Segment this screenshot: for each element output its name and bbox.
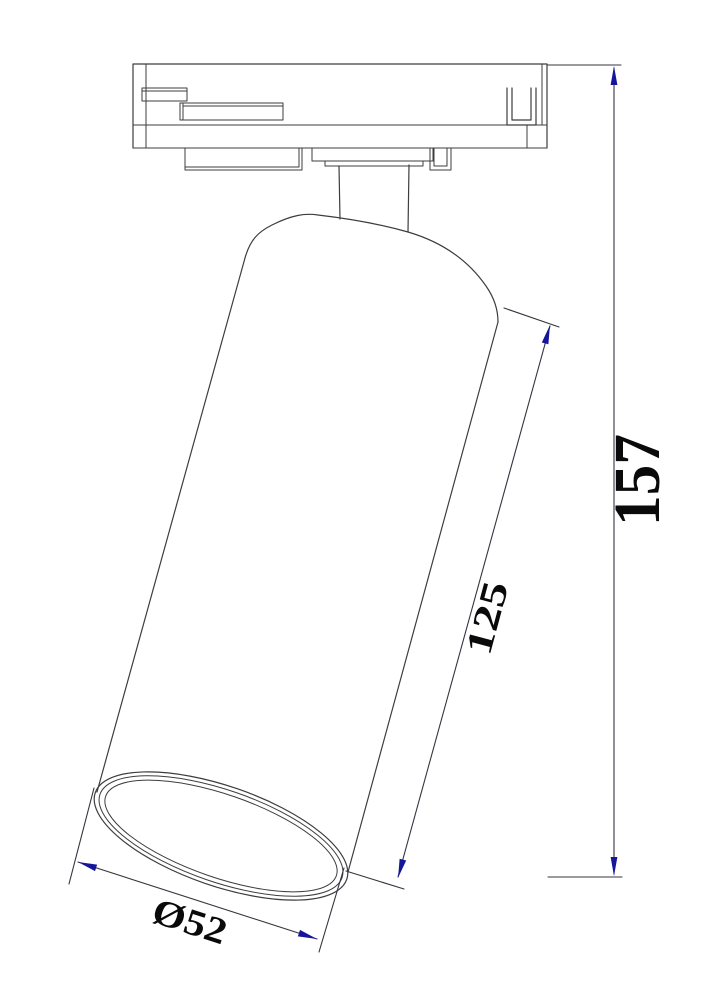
adapter-lug-left (185, 148, 302, 170)
mounting-stem (339, 165, 409, 232)
diameter-extension-right (319, 868, 344, 952)
spotlight-body (79, 214, 498, 926)
height-arrow-top-icon (611, 66, 618, 85)
body-length-dimension-label: 125 (459, 577, 518, 659)
body-side-left (97, 258, 245, 792)
dimension-body-length: 125 (346, 308, 559, 889)
track-adapter (133, 64, 547, 170)
body-length-arrow-bottom-icon (395, 859, 406, 879)
lens-ring-middle (85, 751, 357, 921)
stem-line-left (339, 166, 340, 219)
dimension-drawing: 157 125 Ø52 (0, 0, 707, 1000)
adapter-clip (507, 88, 536, 125)
body-length-arrow-top-icon (542, 324, 553, 344)
adapter-lug-center (312, 148, 433, 166)
body-top-cap (245, 214, 498, 322)
diameter-arrow-left-icon (77, 859, 97, 871)
adapter-slot-small (142, 88, 187, 101)
drawing-canvas: 157 125 Ø52 (0, 0, 707, 1000)
diameter-dimension-label: Ø52 (147, 891, 232, 953)
body-length-extension-bottom (346, 871, 404, 889)
diameter-extension-left (69, 788, 94, 884)
lens-ring-outer (79, 745, 363, 926)
height-dimension-label: 157 (601, 434, 674, 526)
adapter-slot-long (180, 103, 283, 120)
body-length-extension-top (504, 308, 559, 327)
lens-rim (79, 745, 363, 926)
stem-line-right (408, 165, 409, 232)
diameter-arrow-right-icon (298, 930, 318, 942)
dimension-diameter: Ø52 (69, 788, 344, 953)
dimension-height: 157 (547, 65, 674, 877)
lens-ring-inner (92, 757, 350, 915)
height-arrow-bottom-icon (611, 857, 618, 876)
